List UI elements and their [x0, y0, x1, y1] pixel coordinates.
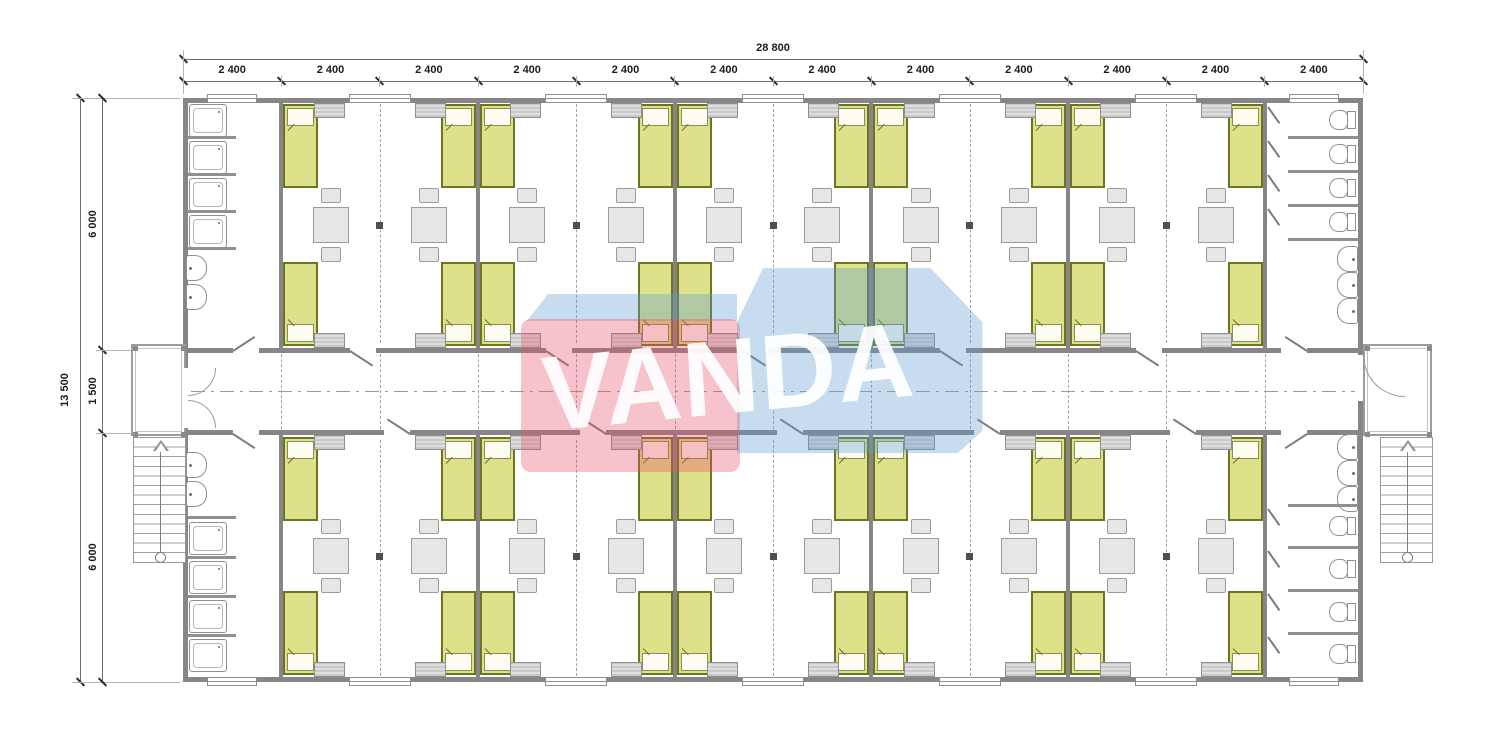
column-marker — [573, 553, 580, 560]
bed-pillow — [1035, 108, 1062, 126]
shower-tray — [189, 600, 227, 633]
locker — [808, 435, 839, 450]
toilet-tank — [1347, 603, 1356, 621]
chair — [1206, 247, 1226, 262]
bed-pillow — [484, 108, 511, 126]
shower-drain — [218, 529, 220, 531]
chair — [714, 578, 734, 593]
stall-door-leaf — [1267, 550, 1280, 568]
basin-tap — [189, 464, 192, 467]
toilet-bowl — [1329, 178, 1348, 198]
toilet-tank — [1347, 145, 1356, 163]
dim-top-total-line — [183, 59, 1363, 60]
chair — [616, 578, 636, 593]
bed-pillow — [445, 653, 472, 671]
dim-top-total-ext — [183, 50, 184, 94]
shower-drain — [218, 222, 220, 224]
dim-left-seg-line — [102, 98, 103, 682]
stall-divider — [1288, 589, 1358, 592]
stall-divider — [1288, 632, 1358, 635]
table — [1099, 538, 1135, 574]
bed-pillow — [445, 108, 472, 126]
bed-pillow — [1232, 441, 1259, 459]
bed-pillow — [838, 108, 865, 126]
chair — [321, 188, 341, 203]
stall-divider — [1288, 170, 1358, 173]
chair — [616, 519, 636, 534]
stall-divider — [188, 595, 236, 598]
dim-top-bay-label: 2 400 — [1082, 64, 1152, 77]
column-marker — [573, 222, 580, 229]
chair — [321, 247, 341, 262]
bed — [638, 591, 673, 675]
window — [1289, 94, 1339, 103]
locker — [1201, 333, 1232, 348]
chair — [616, 247, 636, 262]
bed-pillow — [1232, 324, 1259, 342]
bed — [1031, 104, 1066, 188]
bed-pillow — [287, 108, 314, 126]
dim-left-total-ext — [72, 98, 180, 99]
table — [706, 207, 742, 243]
dim-top-bay-ext — [478, 76, 479, 87]
table — [903, 207, 939, 243]
dim-top-bay-label: 2 400 — [689, 64, 759, 77]
table — [608, 538, 644, 574]
bed — [834, 591, 869, 675]
bed — [1228, 262, 1263, 346]
locker — [314, 662, 345, 677]
chair — [1009, 519, 1029, 534]
chair — [321, 578, 341, 593]
locker — [611, 435, 642, 450]
stall-divider — [188, 634, 236, 637]
bed — [441, 262, 476, 346]
bed-pillow — [681, 324, 708, 342]
locker — [707, 435, 738, 450]
stall-door-leaf — [1267, 174, 1280, 192]
stall-divider — [188, 210, 236, 213]
door-swing-arc — [188, 400, 216, 428]
locker — [1100, 662, 1131, 677]
toilet-tank — [1347, 213, 1356, 231]
locker — [611, 662, 642, 677]
dim-top-bay-ext — [1363, 76, 1364, 87]
shower-tray — [189, 522, 227, 555]
bed-pillow — [484, 441, 511, 459]
column-marker — [376, 553, 383, 560]
window — [1289, 677, 1339, 686]
bed-pillow — [484, 653, 511, 671]
chair — [1107, 247, 1127, 262]
stair-up-arrow-mask — [155, 443, 167, 452]
locker — [314, 435, 345, 450]
toilet-bowl — [1329, 602, 1348, 622]
bed-pillow — [642, 324, 669, 342]
locker — [415, 103, 446, 118]
locker — [611, 103, 642, 118]
porch-post — [1365, 346, 1370, 351]
chair — [419, 188, 439, 203]
stall-divider — [188, 556, 236, 559]
table — [608, 207, 644, 243]
partition-wall — [1263, 103, 1267, 348]
window — [939, 677, 1001, 686]
locker — [1005, 333, 1036, 348]
porch-post — [1427, 346, 1432, 351]
shower-tray — [189, 561, 227, 594]
dim-top-bay-ext — [773, 76, 774, 87]
chair — [419, 519, 439, 534]
locker — [1100, 435, 1131, 450]
bed-pillow — [287, 653, 314, 671]
partition-wall — [1263, 435, 1267, 677]
window — [207, 677, 257, 686]
chair — [911, 578, 931, 593]
locker — [1201, 435, 1232, 450]
locker — [1201, 662, 1232, 677]
stall-divider — [1288, 238, 1358, 241]
bed-pillow — [681, 108, 708, 126]
bed — [834, 104, 869, 188]
dim-left-seg-ext — [96, 433, 134, 434]
stall-divider — [1288, 136, 1358, 139]
bed-pillow — [1232, 108, 1259, 126]
chair — [1107, 578, 1127, 593]
basin-tap — [1352, 498, 1355, 501]
bed — [1228, 437, 1263, 521]
column-marker — [770, 553, 777, 560]
locker — [904, 103, 935, 118]
stairs-left — [133, 437, 186, 563]
stairs-right — [1380, 437, 1433, 563]
chair — [714, 247, 734, 262]
toilet-bowl — [1329, 644, 1348, 664]
locker — [415, 333, 446, 348]
bed-pillow — [877, 653, 904, 671]
shower-tray — [189, 141, 227, 174]
chair — [812, 247, 832, 262]
stall-door-leaf — [1267, 106, 1280, 124]
bed — [834, 437, 869, 521]
basin-tap — [189, 267, 192, 270]
column-marker — [376, 222, 383, 229]
shower-tray — [189, 178, 227, 211]
basin-tap — [1352, 446, 1355, 449]
chair — [812, 519, 832, 534]
dim-top-bay-ext — [674, 76, 675, 87]
shower-drain — [218, 185, 220, 187]
bed — [1228, 104, 1263, 188]
stall-divider — [1288, 546, 1358, 549]
stall-divider — [1288, 504, 1358, 507]
bed — [834, 262, 869, 346]
locker — [904, 662, 935, 677]
chair — [517, 247, 537, 262]
bed — [638, 437, 673, 521]
corridor-centerline — [191, 391, 1355, 392]
dim-top-bay-ext — [969, 76, 970, 87]
bed-pillow — [484, 324, 511, 342]
chair — [911, 247, 931, 262]
dim-left-total-line — [80, 98, 81, 682]
chair — [517, 578, 537, 593]
table — [903, 538, 939, 574]
toilet-bowl — [1329, 144, 1348, 164]
door-opening — [1358, 355, 1363, 401]
dim-top-bay-ext — [1264, 76, 1265, 87]
stall-door-leaf — [1267, 208, 1280, 226]
stall-door-leaf — [1267, 636, 1280, 654]
stair-centerline — [160, 448, 161, 560]
bed — [441, 591, 476, 675]
bed-pillow — [1035, 653, 1062, 671]
dim-top-bay-label: 2 400 — [787, 64, 857, 77]
dim-left-total-ext — [72, 682, 180, 683]
bed-pillow — [287, 441, 314, 459]
locker — [415, 435, 446, 450]
bed-pillow — [445, 441, 472, 459]
window — [1135, 94, 1197, 103]
dim-left-seg-label: 6 000 — [87, 517, 101, 597]
bed-pillow — [642, 653, 669, 671]
chair — [1206, 188, 1226, 203]
window — [545, 677, 607, 686]
shower-drain — [218, 607, 220, 609]
toilet-tank — [1347, 111, 1356, 129]
bed-pillow — [287, 324, 314, 342]
dim-top-bay-label: 2 400 — [984, 64, 1054, 77]
shower-tray — [189, 215, 227, 248]
door-opening — [233, 430, 259, 435]
door-leaf — [232, 433, 255, 449]
shower-drain — [218, 111, 220, 113]
chair — [616, 188, 636, 203]
locker — [808, 662, 839, 677]
chair — [517, 519, 537, 534]
stair-start-circle — [1402, 552, 1413, 563]
chair — [911, 519, 931, 534]
column-marker — [966, 553, 973, 560]
locker — [707, 103, 738, 118]
shower-tray — [189, 104, 227, 137]
shower-tray — [189, 639, 227, 672]
stall-door-leaf — [1267, 593, 1280, 611]
dim-top-bay-label: 2 400 — [394, 64, 464, 77]
chair — [911, 188, 931, 203]
table — [509, 207, 545, 243]
dim-top-bay-label: 2 400 — [1181, 64, 1251, 77]
dim-top-bay-ext — [1068, 76, 1069, 87]
column-marker — [1163, 553, 1170, 560]
locker — [808, 333, 839, 348]
locker — [904, 333, 935, 348]
bed-pillow — [445, 324, 472, 342]
locker — [415, 662, 446, 677]
chair — [714, 188, 734, 203]
locker — [510, 103, 541, 118]
bed — [638, 104, 673, 188]
bed-pillow — [681, 653, 708, 671]
chair — [419, 578, 439, 593]
toilet-bowl — [1329, 110, 1348, 130]
bed-pillow — [642, 108, 669, 126]
bed-pillow — [1074, 324, 1101, 342]
bed — [1031, 591, 1066, 675]
locker — [1005, 435, 1036, 450]
dim-top-bay-label: 2 400 — [492, 64, 562, 77]
porch-left — [131, 344, 186, 436]
window — [1135, 677, 1197, 686]
column-marker — [1163, 222, 1170, 229]
bed — [1031, 262, 1066, 346]
chair — [1206, 519, 1226, 534]
dim-top-bay-ext — [281, 76, 282, 87]
locker — [510, 435, 541, 450]
window — [207, 94, 257, 103]
window — [349, 677, 411, 686]
locker — [314, 103, 345, 118]
dim-top-bay-label: 2 400 — [296, 64, 366, 77]
locker — [1005, 103, 1036, 118]
bed-pillow — [877, 324, 904, 342]
locker — [314, 333, 345, 348]
chair — [1107, 519, 1127, 534]
locker — [611, 333, 642, 348]
table — [1198, 538, 1234, 574]
bed-pillow — [1074, 108, 1101, 126]
chair — [1107, 188, 1127, 203]
bed-pillow — [877, 441, 904, 459]
door-leaf — [1285, 433, 1308, 449]
shower-drain — [218, 646, 220, 648]
table — [411, 538, 447, 574]
table — [804, 207, 840, 243]
dim-left-seg-ext — [96, 350, 134, 351]
toilet-bowl — [1329, 516, 1348, 536]
shower-drain — [218, 148, 220, 150]
column-marker — [770, 222, 777, 229]
chair — [321, 519, 341, 534]
porch-post — [1365, 432, 1370, 437]
dim-top-total-ext — [1363, 50, 1364, 94]
toilet-bowl — [1329, 212, 1348, 232]
window — [349, 94, 411, 103]
stall-divider — [188, 173, 236, 176]
dim-top-bay-ext — [871, 76, 872, 87]
porch-post — [133, 346, 138, 351]
stair-centerline — [1407, 448, 1408, 560]
toilet-tank — [1347, 645, 1356, 663]
porch-inner — [135, 348, 182, 432]
chair — [714, 519, 734, 534]
table — [509, 538, 545, 574]
table — [1001, 207, 1037, 243]
chair — [1009, 578, 1029, 593]
dim-top-bay-ext — [183, 76, 184, 87]
basin-tap — [189, 296, 192, 299]
chair — [1206, 578, 1226, 593]
bed-pillow — [1074, 653, 1101, 671]
dim-top-bay-ext — [379, 76, 380, 87]
column-marker — [966, 222, 973, 229]
bed-pillow — [877, 108, 904, 126]
dim-left-seg-label: 6 000 — [87, 184, 101, 264]
dim-top-bay-label: 2 400 — [591, 64, 661, 77]
bed-pillow — [681, 441, 708, 459]
stall-door-leaf — [1267, 140, 1280, 158]
table — [1001, 538, 1037, 574]
locker — [707, 333, 738, 348]
table — [313, 207, 349, 243]
locker — [1100, 103, 1131, 118]
locker — [510, 333, 541, 348]
dim-top-bay-ext — [1166, 76, 1167, 87]
toilet-tank — [1347, 560, 1356, 578]
bed-pillow — [642, 441, 669, 459]
basin-tap — [1352, 284, 1355, 287]
locker — [1201, 103, 1232, 118]
dim-top-bay-ext — [576, 76, 577, 87]
basin-tap — [1352, 258, 1355, 261]
table — [411, 207, 447, 243]
dim-left-seg-label: 1 500 — [87, 351, 101, 431]
basin-tap — [189, 493, 192, 496]
basin-tap — [1352, 310, 1355, 313]
window — [742, 677, 804, 686]
toilet-tank — [1347, 517, 1356, 535]
stall-divider — [188, 516, 236, 519]
dim-top-bay-label: 2 400 — [886, 64, 956, 77]
bed-pillow — [1232, 653, 1259, 671]
bed-pillow — [838, 324, 865, 342]
locker — [808, 103, 839, 118]
toilet-bowl — [1329, 559, 1348, 579]
dim-left-total-label: 13 500 — [59, 350, 73, 430]
dim-top-bay-label: 2 400 — [197, 64, 267, 77]
chair — [419, 247, 439, 262]
bed-pillow — [838, 441, 865, 459]
stall-divider — [188, 136, 236, 139]
bed-pillow — [838, 653, 865, 671]
dim-top-total-label: 28 800 — [733, 42, 813, 55]
stair-start-circle — [155, 552, 166, 563]
bed — [1031, 437, 1066, 521]
floor-plan-canvas: 28 8002 4002 4002 4002 4002 4002 4002 40… — [0, 0, 1500, 736]
bed — [1228, 591, 1263, 675]
chair — [812, 188, 832, 203]
basin-tap — [1352, 472, 1355, 475]
bed-pillow — [1074, 441, 1101, 459]
chair — [812, 578, 832, 593]
window — [939, 94, 1001, 103]
window — [742, 94, 804, 103]
shower-drain — [218, 568, 220, 570]
chair — [517, 188, 537, 203]
toilet-tank — [1347, 179, 1356, 197]
locker — [904, 435, 935, 450]
bed-pillow — [1035, 324, 1062, 342]
locker — [1005, 662, 1036, 677]
table — [313, 538, 349, 574]
stall-divider — [1288, 204, 1358, 207]
locker — [510, 662, 541, 677]
bed — [441, 104, 476, 188]
dim-top-bay-label: 2 400 — [1279, 64, 1349, 77]
table — [706, 538, 742, 574]
bed-pillow — [1035, 441, 1062, 459]
table — [804, 538, 840, 574]
